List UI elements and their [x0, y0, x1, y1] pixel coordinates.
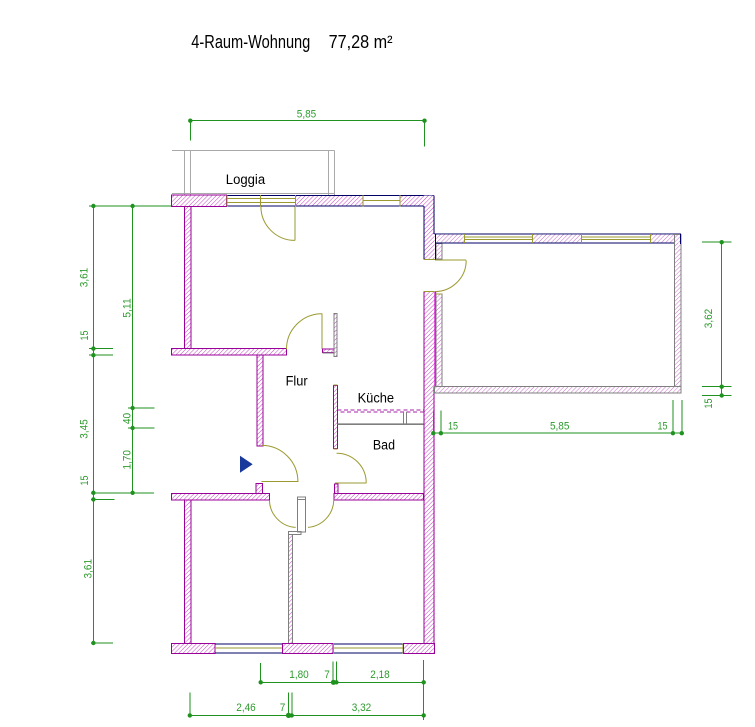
svg-text:3,61: 3,61 [83, 559, 95, 579]
svg-text:5,11: 5,11 [121, 298, 133, 318]
svg-text:3,61: 3,61 [79, 268, 91, 288]
svg-text:Flur: Flur [286, 374, 308, 389]
svg-text:2,46: 2,46 [236, 702, 256, 714]
svg-text:3,32: 3,32 [352, 702, 372, 714]
svg-text:2,18: 2,18 [370, 669, 390, 681]
svg-text:Bad: Bad [373, 438, 395, 453]
svg-text:4-Raum-Wohnung: 4-Raum-Wohnung [191, 32, 310, 52]
svg-text:15: 15 [658, 421, 668, 433]
svg-text:40: 40 [121, 413, 133, 424]
svg-text:Loggia: Loggia [226, 172, 266, 187]
svg-text:7: 7 [324, 669, 330, 681]
svg-text:15: 15 [79, 476, 91, 486]
svg-text:77,28 m²: 77,28 m² [329, 32, 393, 52]
svg-text:15: 15 [703, 399, 715, 409]
svg-text:1,70: 1,70 [121, 450, 133, 470]
svg-text:1,80: 1,80 [289, 669, 309, 681]
svg-text:3,62: 3,62 [703, 309, 715, 329]
svg-text:15: 15 [448, 421, 458, 433]
svg-text:Küche: Küche [358, 391, 395, 406]
svg-text:15: 15 [79, 331, 91, 341]
svg-text:5,85: 5,85 [550, 421, 570, 433]
svg-text:3,45: 3,45 [79, 419, 91, 439]
svg-text:5,85: 5,85 [297, 108, 317, 120]
svg-text:7: 7 [280, 702, 286, 714]
